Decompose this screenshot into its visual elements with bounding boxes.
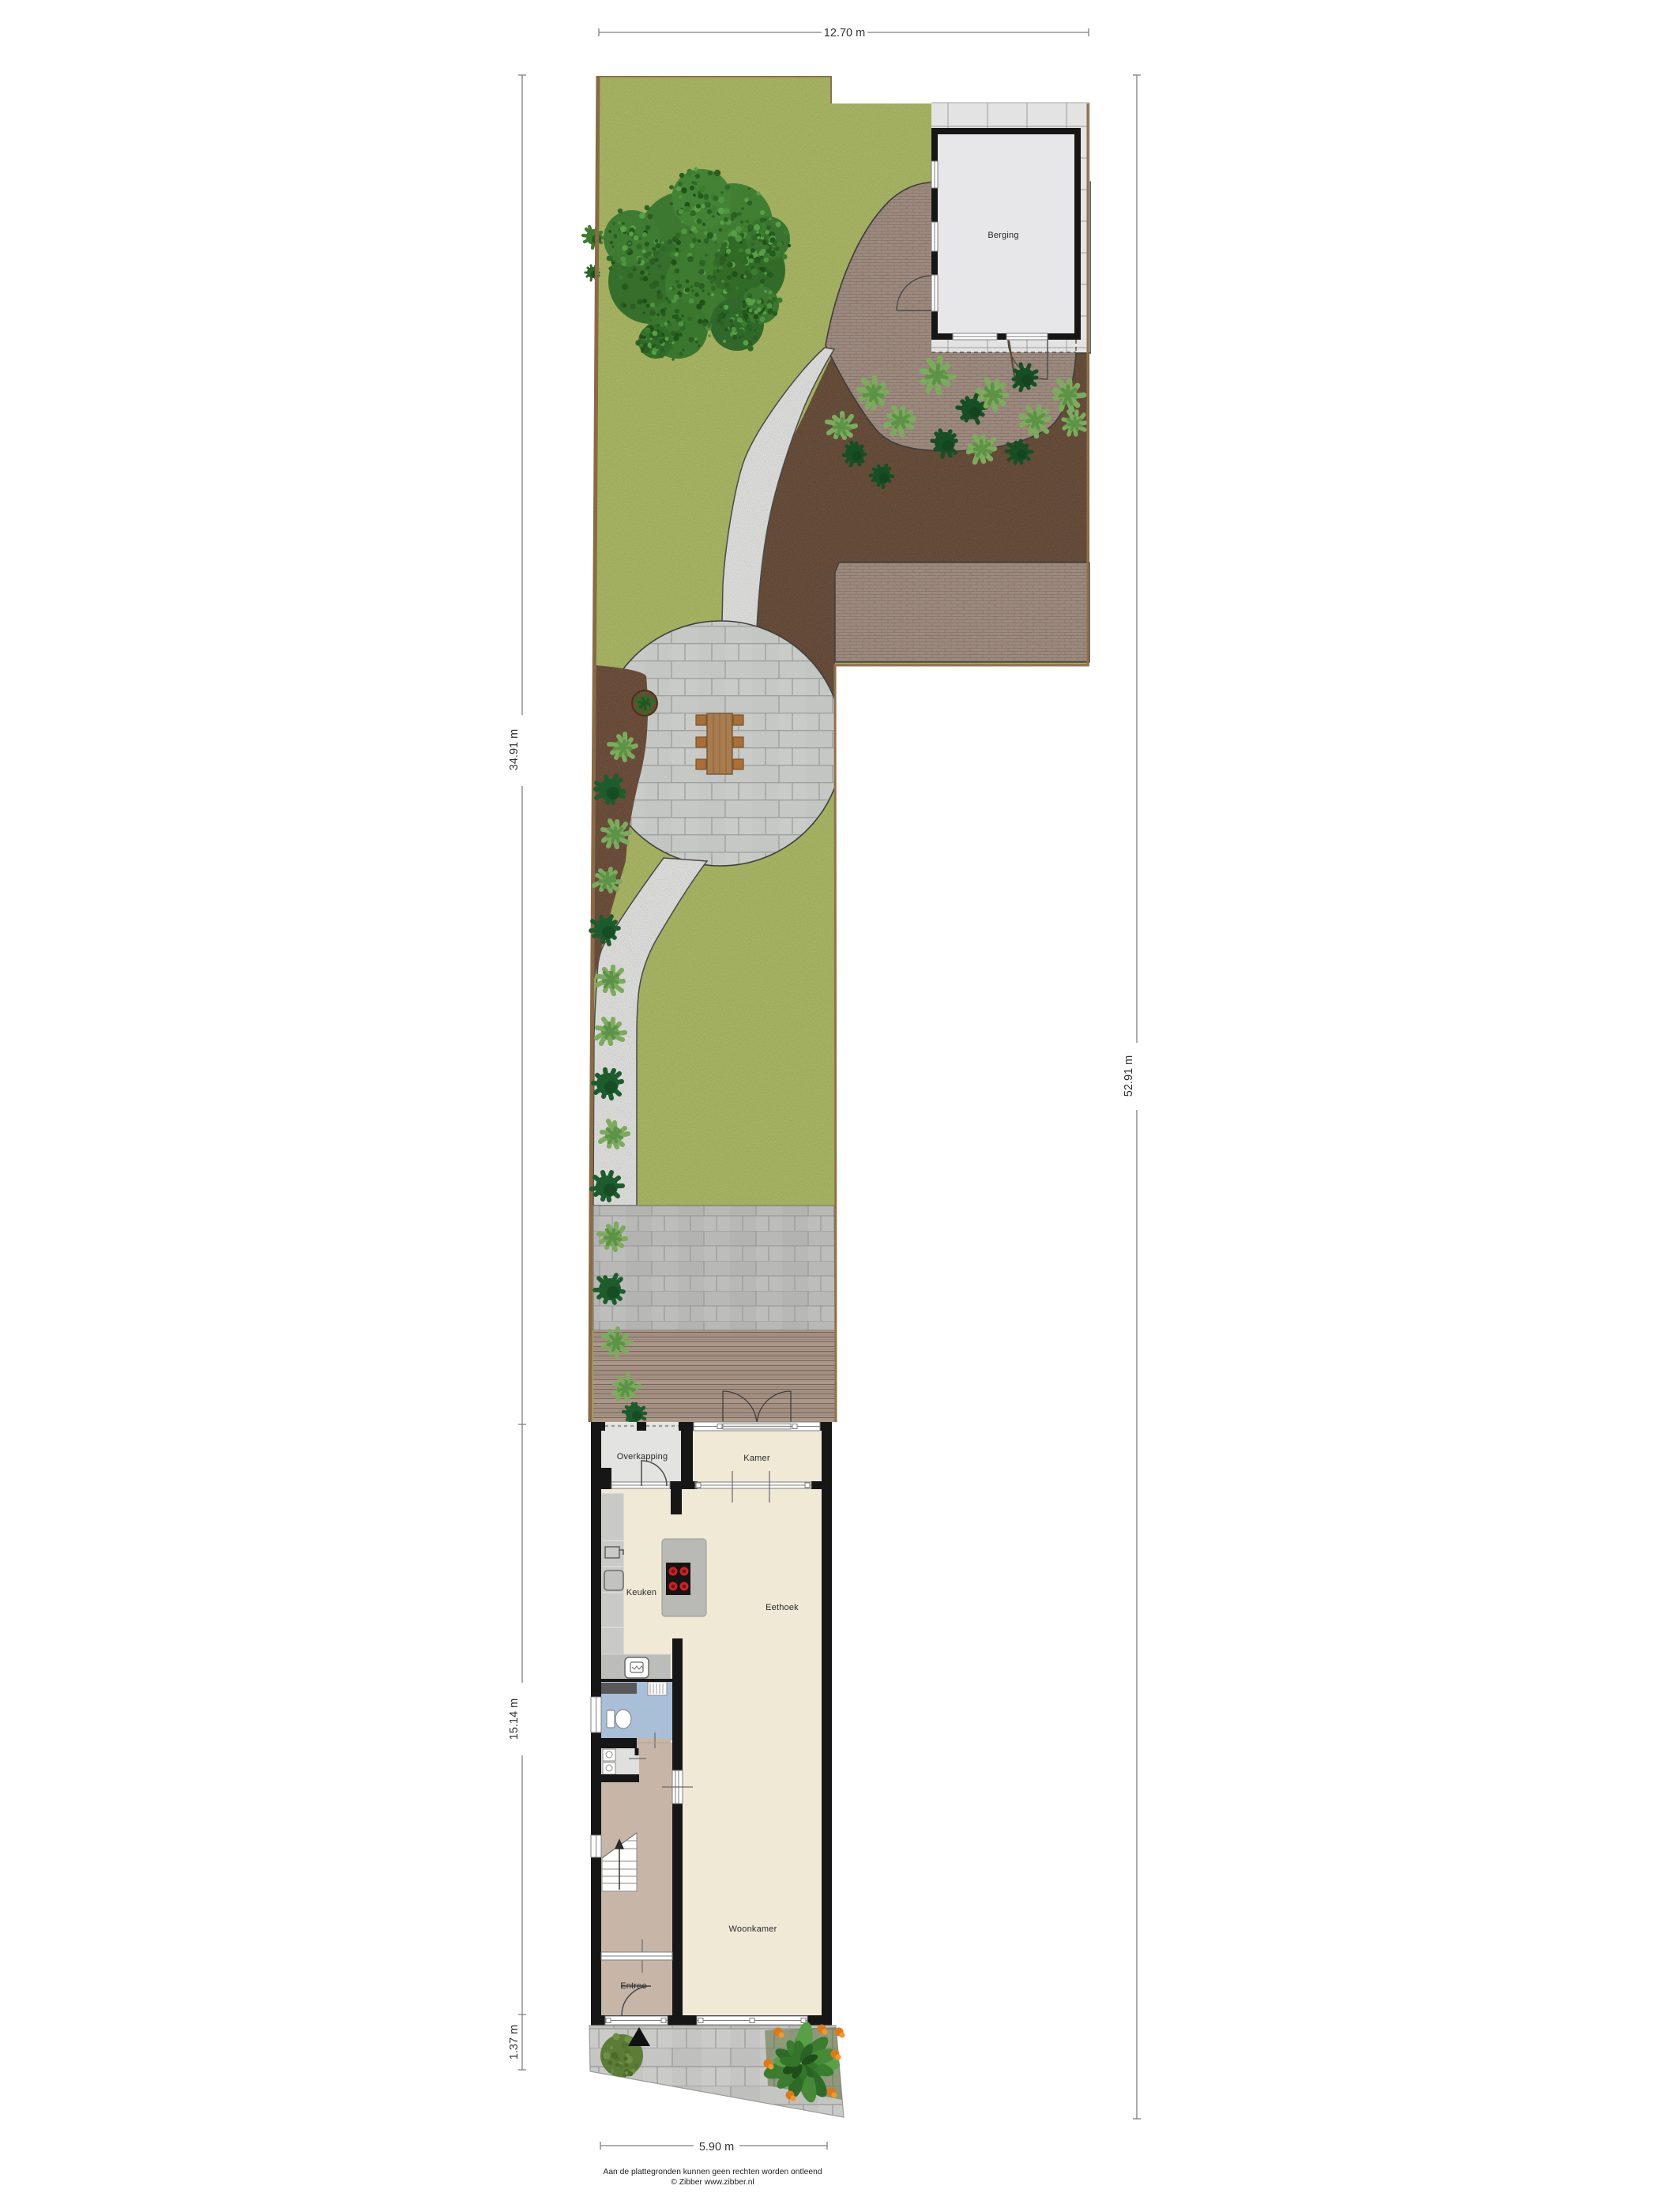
svg-text:5.90 m: 5.90 m xyxy=(699,2141,734,2154)
svg-text:Eethoek: Eethoek xyxy=(766,1603,799,1612)
svg-text:34.91 m: 34.91 m xyxy=(508,729,521,770)
svg-text:1.37 m: 1.37 m xyxy=(508,2025,521,2060)
svg-text:Kamer: Kamer xyxy=(743,1454,770,1463)
svg-text:52.91 m: 52.91 m xyxy=(1123,1055,1135,1097)
svg-text:Woonkamer: Woonkamer xyxy=(729,1924,777,1934)
svg-text:15.14 m: 15.14 m xyxy=(508,1698,521,1740)
svg-text:12.70 m: 12.70 m xyxy=(824,27,865,39)
svg-text:Entree: Entree xyxy=(620,1981,647,1991)
svg-text:Keuken: Keuken xyxy=(626,1588,657,1597)
svg-text:© Zibber www.zibber.nl: © Zibber www.zibber.nl xyxy=(671,2178,754,2187)
svg-text:Overkapping: Overkapping xyxy=(617,1452,668,1461)
svg-text:Berging: Berging xyxy=(987,231,1018,240)
svg-text:Aan de plattegronden kunnen ge: Aan de plattegronden kunnen geen rechten… xyxy=(603,2168,822,2176)
